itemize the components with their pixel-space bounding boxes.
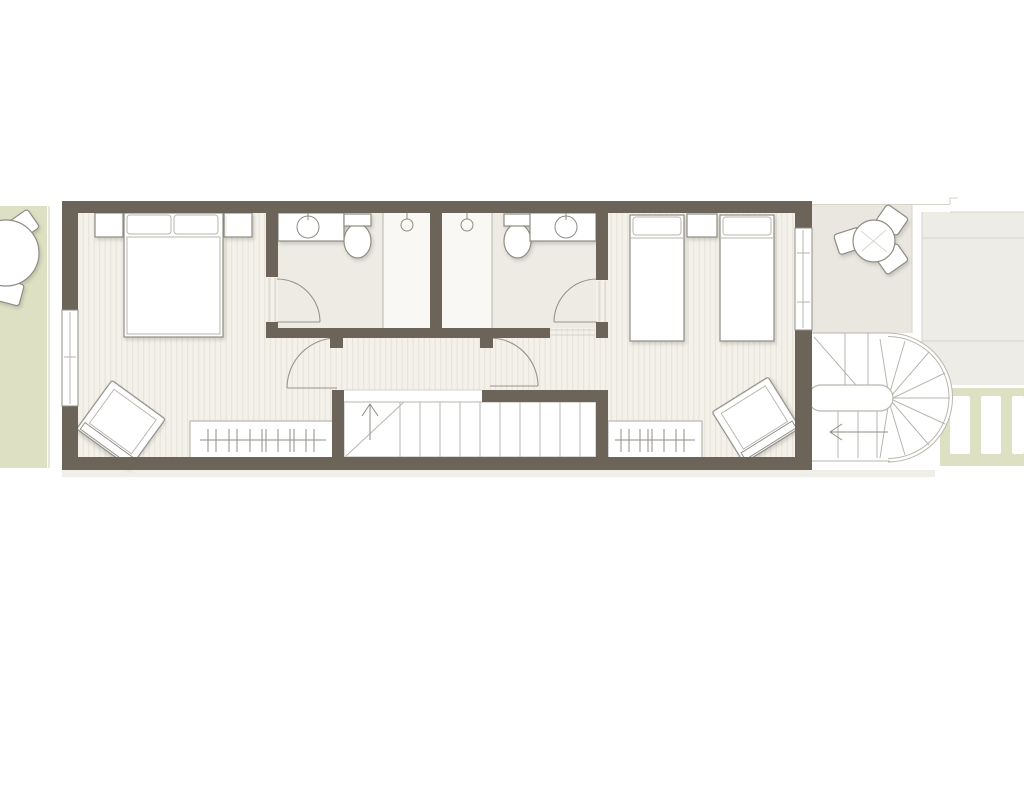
- partition-ensuite2-stub: [596, 322, 608, 338]
- floor-plan-drawing: [0, 0, 1024, 800]
- wall-right-upper: [795, 201, 812, 228]
- nightstand-left: [95, 213, 123, 237]
- partition-between-ensuites: [430, 213, 442, 338]
- window-right: [795, 228, 812, 330]
- left-garden: [0, 206, 49, 468]
- wall-top: [62, 201, 812, 213]
- wall-right-lower: [795, 330, 812, 470]
- partition-ensuite1-west: [266, 213, 278, 277]
- nightstand-right: [224, 213, 252, 237]
- hinge-post-right: [480, 338, 493, 348]
- washbasin: [278, 210, 344, 241]
- path-slat: [1012, 396, 1024, 454]
- nightstand: [687, 214, 717, 237]
- toilet-cistern: [344, 214, 371, 226]
- stairwell-wall-east: [596, 402, 608, 458]
- external-winder-stair: [808, 333, 953, 462]
- building-shadow: [62, 470, 935, 477]
- partition-ensuite2-east: [596, 213, 608, 280]
- wall-hall: [266, 328, 550, 338]
- stairwell-wall-top: [482, 390, 608, 402]
- stairwell-wall-west: [332, 390, 344, 458]
- stair-core: [808, 385, 893, 411]
- window-left: [62, 310, 78, 406]
- wardrobe: [190, 421, 335, 458]
- path-slat: [981, 396, 1001, 454]
- bed-outline: [124, 213, 223, 337]
- hinge-post-left: [330, 338, 343, 348]
- wardrobe: [608, 421, 702, 458]
- ensuite2-shower-floor: [442, 213, 492, 328]
- toilet-bowl: [504, 224, 531, 258]
- path-slat: [950, 396, 970, 454]
- wall-bottom: [62, 457, 812, 470]
- floor-plan-page: [0, 0, 1024, 800]
- toilet: [504, 214, 531, 258]
- toilet-bowl: [344, 224, 371, 258]
- toilet: [344, 214, 371, 258]
- washbasin: [530, 210, 596, 241]
- basin-counter: [530, 213, 596, 241]
- double-bed: [124, 213, 223, 337]
- toilet-cistern: [504, 214, 531, 226]
- single-bed-left: [630, 215, 684, 341]
- single-bed-right: [720, 215, 774, 341]
- bed-outline: [720, 215, 774, 341]
- wall-left-lower: [62, 406, 78, 470]
- ensuite1-shower-floor: [383, 213, 430, 328]
- neighbor-step-line: [950, 198, 958, 204]
- basin-counter: [278, 213, 344, 241]
- wall-left-upper: [62, 201, 78, 310]
- bed-outline: [630, 215, 684, 341]
